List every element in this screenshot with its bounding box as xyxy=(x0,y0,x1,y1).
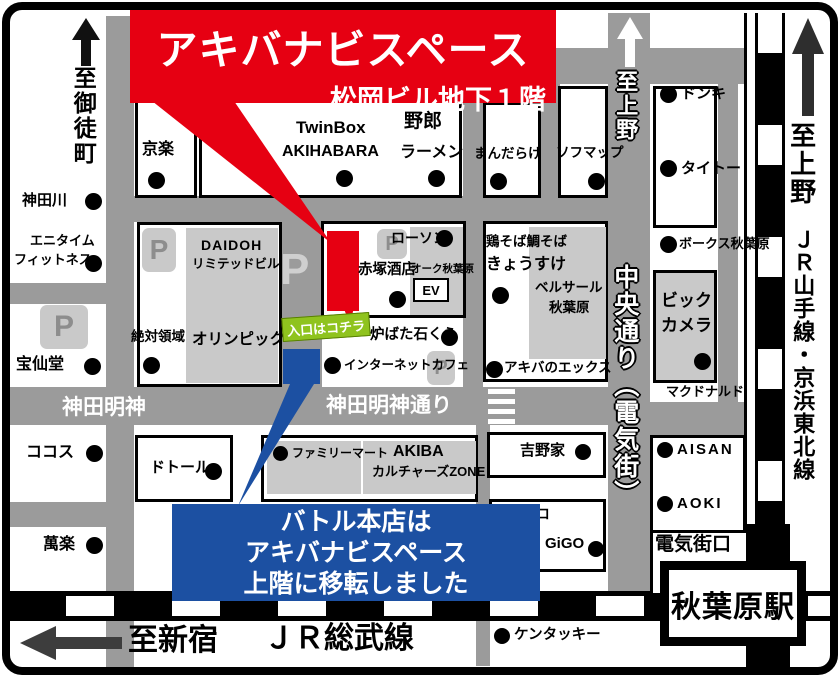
callout-line3: 上階に移転しました xyxy=(172,569,540,600)
dot-famima xyxy=(273,446,288,461)
dot-donki xyxy=(660,86,677,103)
dot-mandarake xyxy=(490,173,507,190)
dot-manraku xyxy=(86,537,103,554)
poi-volks: ボークス秋葉原 xyxy=(679,237,770,251)
poi-daidoh-line1: DAIDOH xyxy=(201,238,262,253)
poi-dotour: ドトール xyxy=(150,460,210,477)
poi-yoshinoya: 吉野家 xyxy=(520,443,565,460)
title-banner: アキバナビスペース 松岡ビル地下１階 xyxy=(130,8,556,103)
dot-cocos xyxy=(86,445,103,462)
poi-kandagawa: 神田川 xyxy=(22,193,67,210)
poi-familymart: ファミリーマート xyxy=(292,447,388,460)
poi-twinbox-line2: AKIHABARA xyxy=(282,143,379,161)
battle-honten-old-location xyxy=(283,349,320,384)
poi-zone-line1: AKIBA xyxy=(393,443,444,461)
road-left-stub-lower xyxy=(8,502,108,527)
poi-sofmap: ソフマップ xyxy=(556,146,624,161)
dot-akiba-x xyxy=(486,361,503,378)
poi-kyosuke-line1: 鶏そば鯛そば xyxy=(486,235,567,250)
dot-taito xyxy=(660,160,677,177)
dot-dotour xyxy=(205,463,222,480)
dot-aoki xyxy=(657,496,673,512)
akihabara-access-map: P P P P P EV 神田明神 神田明神通り 中央通り（電気街） ＪＲ総武線… xyxy=(0,0,840,677)
block-donki-taito xyxy=(653,86,717,228)
street-kanda-myojin: 神田明神 xyxy=(62,396,146,419)
parking-icon-daidoh: P xyxy=(142,228,176,272)
railway-name-yamanote: ＪＲ山手線・京浜東北線 xyxy=(790,228,814,481)
dot-twinbox xyxy=(336,170,353,187)
dot-aisan xyxy=(657,442,673,458)
poi-taito: タイトー xyxy=(681,161,741,178)
poi-internet-cafe: インターネットカフェ xyxy=(344,359,469,373)
dot-anytime xyxy=(85,255,102,272)
dot-sofmap xyxy=(588,173,605,190)
ueno-rail-arrow-icon xyxy=(792,18,824,116)
dot-yarou xyxy=(428,170,445,187)
poi-bic-line1: ビック xyxy=(661,292,712,311)
road-left-stub-upper xyxy=(8,283,108,304)
poi-kyosuke-line2: きょうすけ xyxy=(486,256,566,274)
dot-lawson xyxy=(436,230,453,247)
railway-yamanote-keihin xyxy=(755,13,785,532)
dot-kentucky xyxy=(494,628,510,644)
poi-twinbox-line1: TwinBox xyxy=(296,119,366,138)
poi-bellesalle-line2: 秋葉原 xyxy=(549,301,590,316)
road-mcdonalds-horizontal xyxy=(650,402,746,436)
poi-donki: ドンキ xyxy=(681,86,726,103)
road-upper-cross-street xyxy=(106,196,608,222)
poi-kentucky: ケンタッキー xyxy=(514,628,601,644)
direction-okachimachi: 至御徒町 xyxy=(70,66,95,166)
poi-anytime-line1: エニタイム xyxy=(30,234,95,248)
station-gate-label: 電気街口 xyxy=(655,535,731,556)
poi-gigo: GiGO xyxy=(545,536,584,553)
poi-bellesalle-line1: ベルサール xyxy=(535,281,603,296)
map-subtitle: 松岡ビル地下１階 xyxy=(130,78,556,117)
dot-bic xyxy=(694,353,711,370)
poi-anytime-line2: フィットネス xyxy=(14,253,92,267)
poi-aisan: AISAN xyxy=(677,442,734,459)
entrance-label: 入口はコチラ xyxy=(281,312,370,342)
dot-kandagawa xyxy=(85,193,102,210)
direction-shinjuku: 至新宿 xyxy=(128,624,218,657)
elevator-icon: EV xyxy=(413,278,449,302)
akihabara-station-box: 秋葉原駅 xyxy=(660,561,806,646)
poi-olympic: オリンピック xyxy=(192,331,285,348)
poi-zone-line2: カルチャーズZONE xyxy=(372,465,485,479)
dot-hosendo xyxy=(84,358,101,375)
parking-icon-left: P xyxy=(40,305,88,349)
parking-icon-road: P xyxy=(280,246,309,294)
poi-akiba-x: アキバのエックス xyxy=(504,361,612,376)
poi-hosendo: 宝仙堂 xyxy=(16,356,64,374)
direction-ueno-road: 至上野 xyxy=(613,70,638,142)
direction-ueno-rail: 至上野 xyxy=(787,122,816,206)
poi-daidoh-line2: リミテッドビル xyxy=(192,258,280,272)
poi-manraku: 萬楽 xyxy=(43,536,75,554)
dot-akatsuka xyxy=(389,291,406,308)
map-title: アキバナビスペース xyxy=(130,16,556,76)
target-building-matsuoka xyxy=(327,231,359,311)
crosswalk-icon xyxy=(488,389,515,425)
street-sobu-line: ＪＲ総武線 xyxy=(264,622,414,655)
poi-bic-line2: カメラ xyxy=(661,317,712,336)
poi-cocos: ココス xyxy=(26,444,74,462)
poi-zettai-ryoiki: 絶対領域 xyxy=(131,330,185,345)
okachimachi-arrow-icon xyxy=(72,18,100,66)
dot-yoshinoya xyxy=(575,444,591,460)
callout-line1: バトル本店は xyxy=(172,507,540,538)
poi-mandarake: まんだらけ xyxy=(474,147,542,162)
dot-gigo xyxy=(588,541,604,557)
callout-line2: アキバナビスペース xyxy=(172,538,540,569)
street-kanda-myojin-dori: 神田明神通り xyxy=(326,394,452,417)
poi-aoki: AOKI xyxy=(677,496,723,513)
relocation-callout: バトル本店は アキバナビスペース 上階に移転しました xyxy=(172,504,540,601)
dot-netcafe xyxy=(324,357,341,374)
dot-kyoraku xyxy=(148,172,165,189)
street-chuo-dori: 中央通り（電気街） xyxy=(610,264,639,507)
dot-zettai xyxy=(143,357,160,374)
dot-robata xyxy=(441,329,458,346)
poi-yarou-line2: ラーメン xyxy=(400,144,463,162)
poi-akatsuka: 赤塚酒店 xyxy=(358,263,416,279)
poi-kyoraku: 京楽 xyxy=(142,141,174,159)
poi-oak-akihabara: オーク秋葉原 xyxy=(411,264,474,276)
poi-mcdonalds: マクドナルド xyxy=(666,385,744,399)
dot-volks xyxy=(660,236,677,253)
dot-kyosuke xyxy=(492,287,509,304)
